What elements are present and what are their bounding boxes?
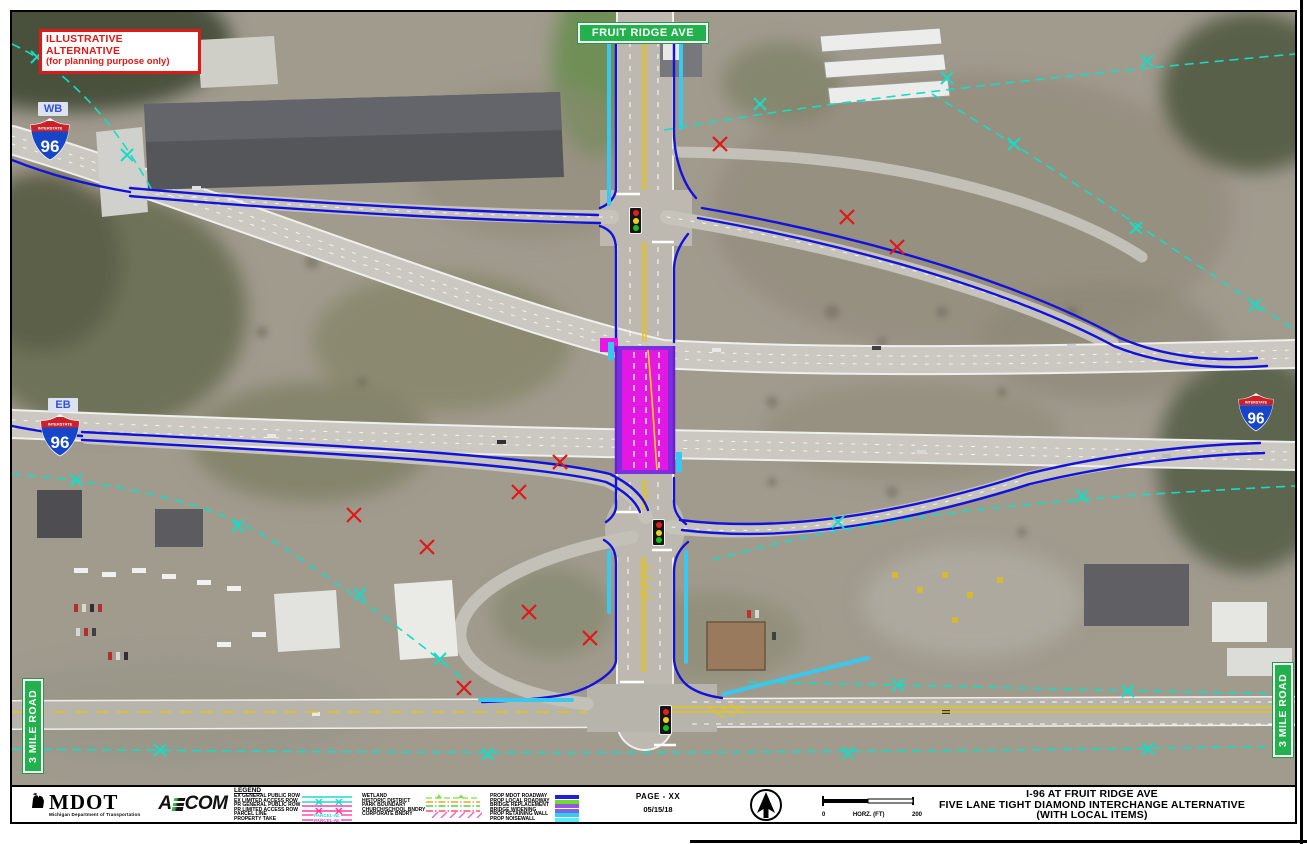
fruit-ridge-ave-label: FRUIT RIDGE AVE: [578, 23, 708, 43]
svg-text:PARCEL-NL: PARCEL-NL: [314, 818, 340, 823]
i96-shield-eb: INTERSTATE 96: [40, 413, 80, 462]
plan-date: 05/15/18: [598, 805, 718, 814]
title-line3: (WITH LOCAL ITEMS): [892, 810, 1292, 821]
page-edge-line-right: [1300, 0, 1303, 844]
interstate-banner-text: INTERSTATE: [1245, 400, 1268, 404]
legend-group-proposed: PROP MDOT ROADWAYPROP LOCAL ROADWAYBRIDG…: [490, 794, 581, 821]
traffic-signal-south-ramp-icon: [652, 519, 665, 546]
illustrative-alternative-note: ILLUSTRATIVE ALTERNATIVE (for planning p…: [39, 29, 201, 74]
scale-start: 0: [822, 812, 825, 818]
page-info: PAGE - XX 05/15/18: [598, 792, 718, 814]
legend-group-boundaries: WETLANDHISTORIC DISTRICTPARK BOUNDARYCHU…: [362, 794, 482, 821]
legend-item: PROPERTY TAKEPARCEL-NL: [234, 817, 354, 822]
title-block: I-96 AT FRUIT RIDGE AVE FIVE LANE TIGHT …: [892, 789, 1292, 821]
page-number: PAGE - XX: [598, 792, 718, 801]
interstate-banner-text: INTERSTATE: [48, 421, 73, 426]
aecom-e-bars-icon: [171, 798, 185, 811]
route-number-text: 96: [1248, 411, 1265, 428]
route-number-text: 96: [41, 137, 60, 156]
legend-item-symbol: [424, 805, 482, 823]
route-number-text: 96: [51, 433, 70, 452]
legend-item: PROP NOISEWALL: [490, 817, 581, 822]
aecom-letter-a: A: [158, 793, 171, 815]
interstate-banner-text: INTERSTATE: [38, 125, 63, 130]
michigan-state-icon: [30, 792, 47, 811]
mdot-wordmark: MDOT: [49, 792, 140, 812]
plan-sheet: ILLUSTRATIVE ALTERNATIVE (for planning p…: [10, 10, 1297, 824]
page-edge-line-bottom: [690, 840, 1307, 843]
warning-line2: (for planning purpose only): [46, 57, 194, 67]
three-mile-road-label-right: 3 MILE ROAD: [1273, 663, 1293, 757]
legend-item-label: PROP NOISEWALL: [490, 817, 553, 822]
scale-unit: HORZ. (FT): [853, 812, 885, 818]
wb-direction-label: WB: [38, 102, 68, 116]
legend-item-symbol: PARCEL-NL: [300, 810, 354, 828]
mdot-tagline: Michigan Department of Transportation: [49, 812, 140, 817]
aerial-plan-map: ILLUSTRATIVE ALTERNATIVE (for planning p…: [12, 12, 1295, 787]
traffic-signal-north-ramp-icon: [629, 207, 642, 234]
mdot-logo: MDOT Michigan Department of Transportati…: [30, 792, 140, 817]
aecom-letters-com: COM: [185, 793, 228, 815]
three-mile-road-label-left: 3 MILE ROAD: [23, 679, 43, 773]
eb-direction-label: EB: [48, 398, 78, 412]
legend-item-label: PROPERTY TAKE: [234, 817, 300, 822]
traffic-signal-three-mile-icon: [659, 705, 672, 735]
title-bar: MDOT Michigan Department of Transportati…: [12, 785, 1295, 822]
agency-logos: MDOT Michigan Department of Transportati…: [30, 790, 227, 818]
legend-item-symbol: [553, 810, 581, 828]
map-graphics: [12, 12, 1295, 787]
i96-shield-wb: INTERSTATE 96: [30, 117, 70, 166]
aecom-logo: A COM: [158, 793, 227, 815]
legend-item: CORPORATE BNDRY: [362, 812, 482, 817]
legend-group-row: EX GENERAL PUBLIC ROWEX LIMITED ACCESS R…: [234, 794, 354, 821]
title-line1: I-96 AT FRUIT RIDGE AVE: [892, 789, 1292, 800]
legend-item-label: CORPORATE BNDRY: [362, 812, 424, 817]
north-arrow-icon: [749, 788, 783, 827]
warning-line1: ILLUSTRATIVE ALTERNATIVE: [46, 34, 194, 57]
i96-shield-east: INTERSTATE 96: [1238, 388, 1274, 441]
legend: LEGEND EX GENERAL PUBLIC ROWEX LIMITED A…: [234, 788, 606, 821]
